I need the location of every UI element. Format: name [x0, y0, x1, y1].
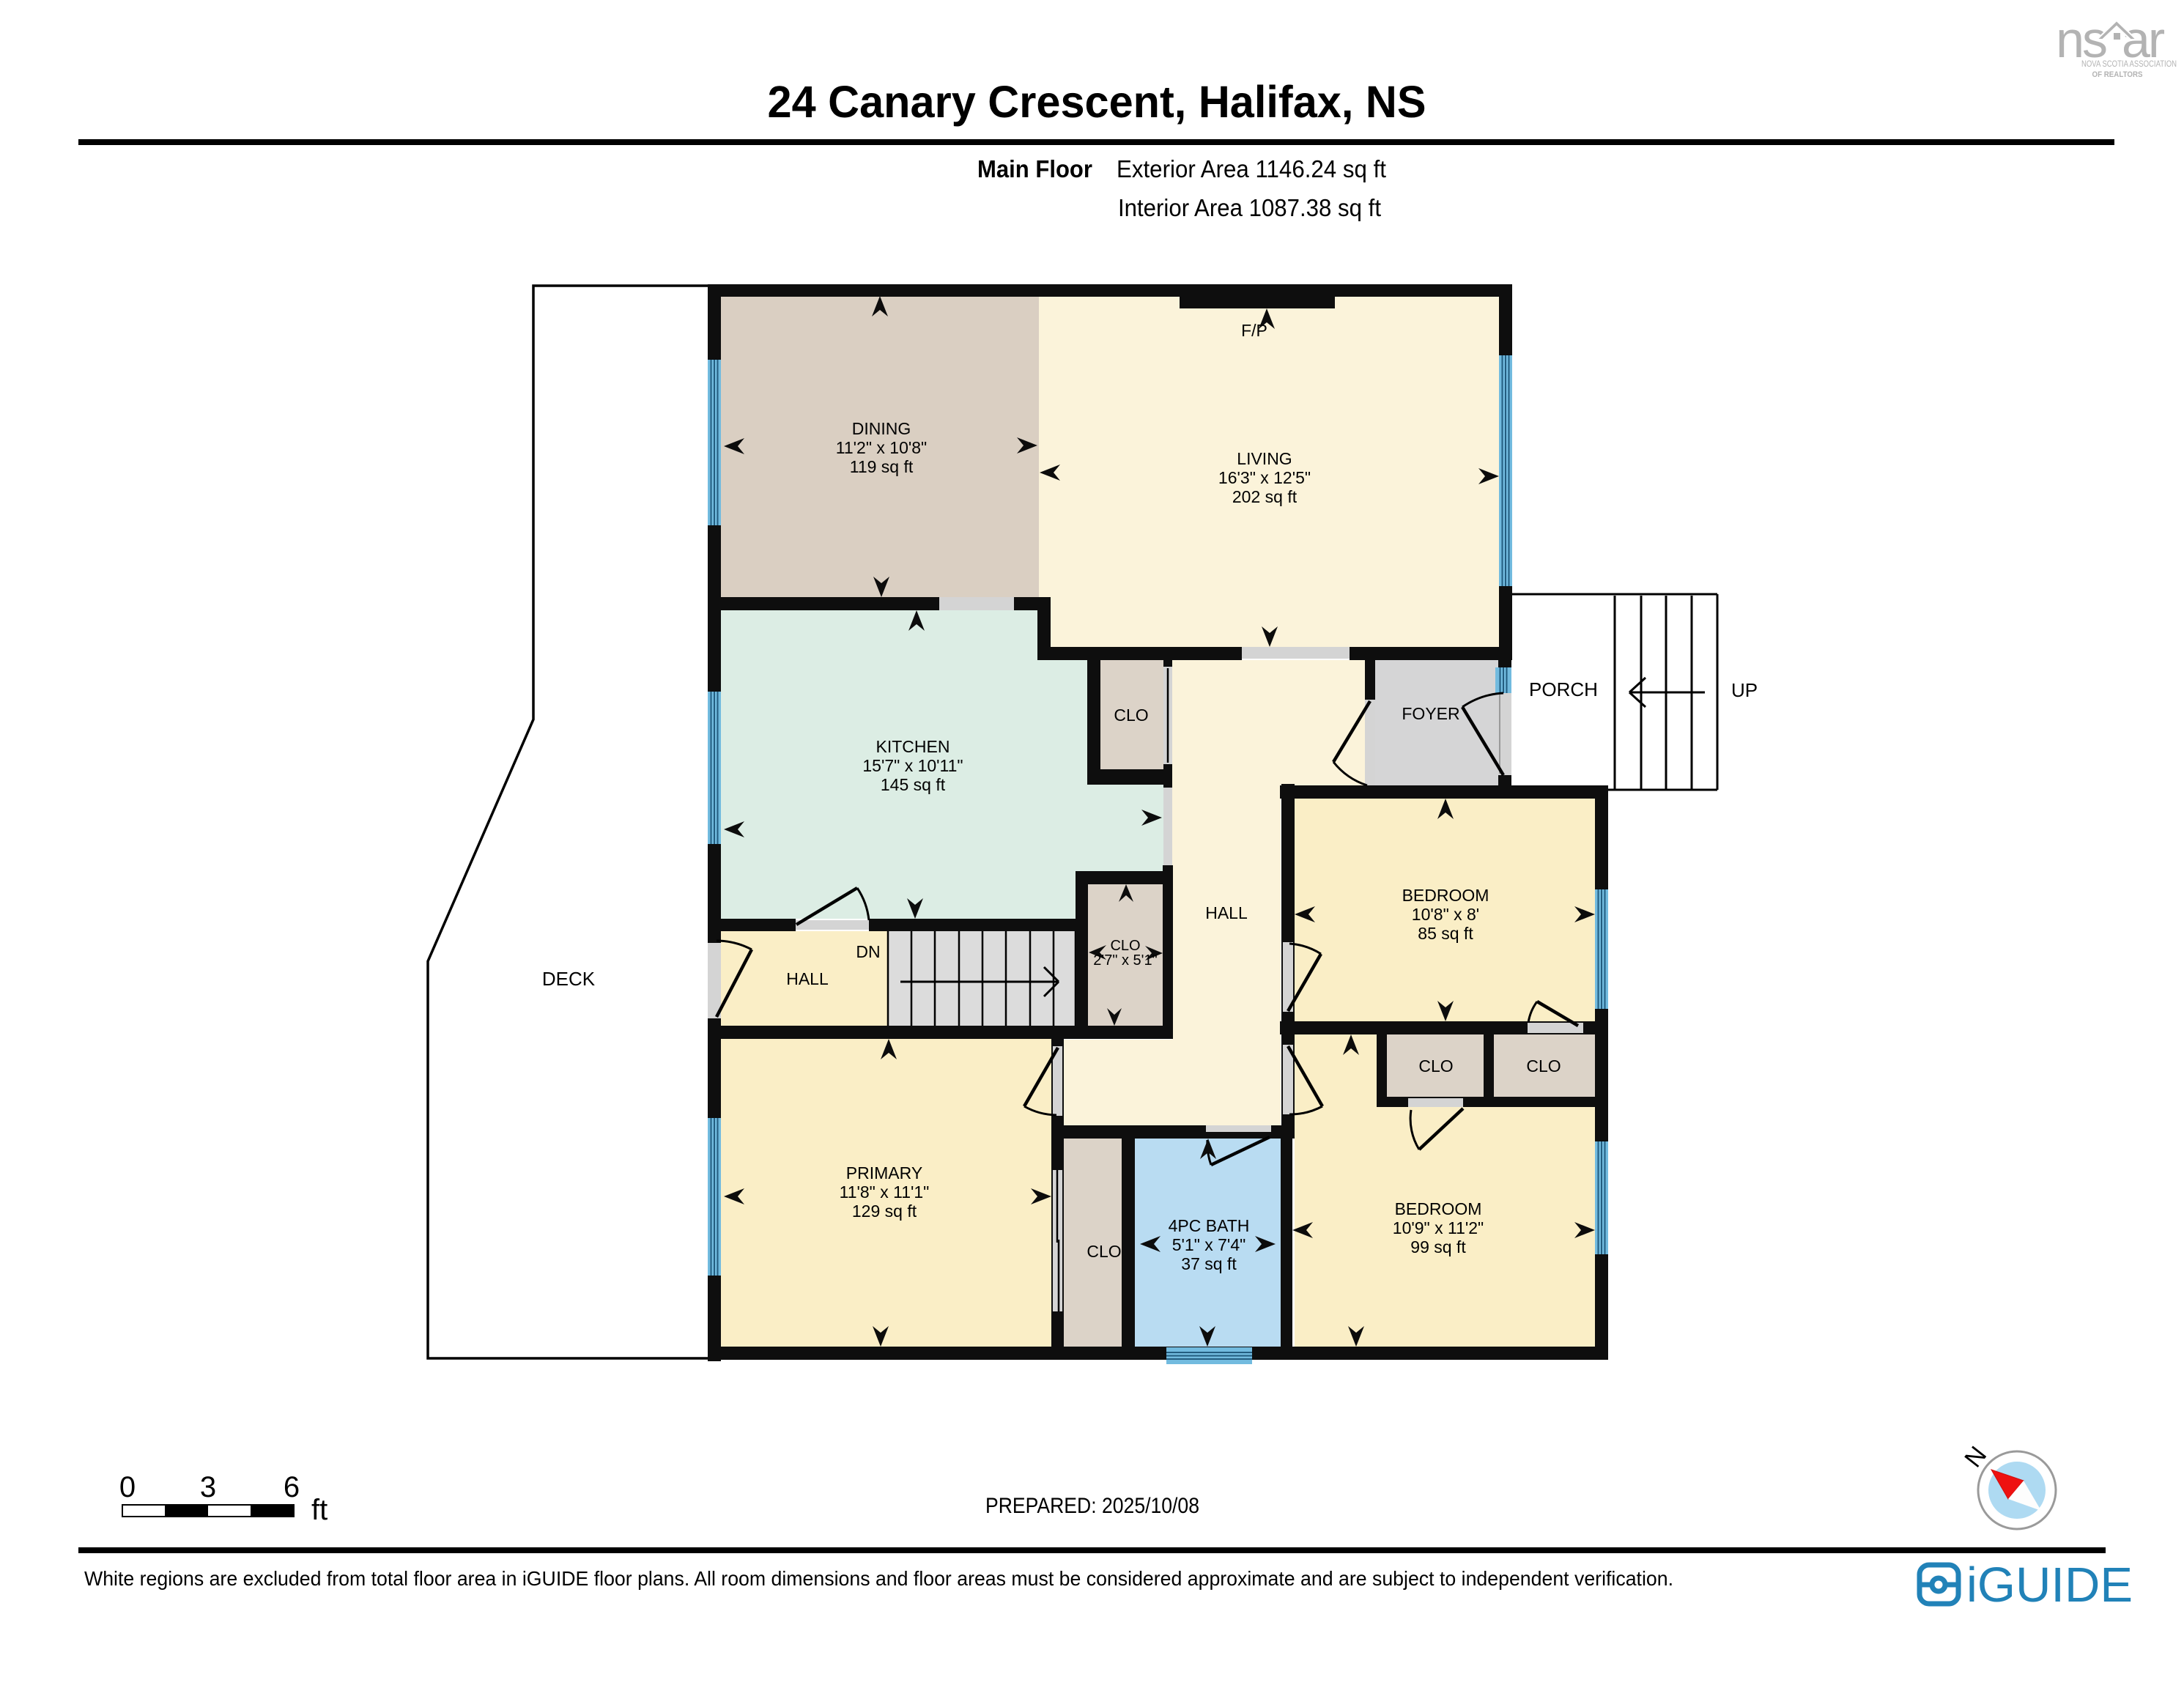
svg-text:PORCH: PORCH: [1529, 678, 1598, 700]
svg-text:OF REALTORS: OF REALTORS: [2092, 70, 2143, 79]
svg-text:24 Canary Crescent, Halifax, N: 24 Canary Crescent, Halifax, NS: [768, 77, 1426, 127]
svg-text:145 sq ft: 145 sq ft: [881, 775, 946, 794]
svg-text:F/P: F/P: [1241, 321, 1267, 340]
svg-text:2'7" x 5'1": 2'7" x 5'1": [1093, 952, 1157, 969]
svg-text:11'2" x 10'8": 11'2" x 10'8": [836, 438, 927, 457]
svg-text:ft: ft: [311, 1494, 327, 1526]
svg-text:DECK: DECK: [542, 968, 596, 990]
svg-text:CLO: CLO: [1526, 1056, 1561, 1076]
svg-text:CLO: CLO: [1087, 1242, 1121, 1261]
svg-text:6: 6: [284, 1471, 300, 1503]
svg-text:3: 3: [200, 1471, 216, 1503]
svg-text:Exterior Area 1146.24 sq ft: Exterior Area 1146.24 sq ft: [1117, 155, 1386, 182]
svg-text:85 sq ft: 85 sq ft: [1418, 924, 1473, 943]
svg-text:10'9" x 11'2": 10'9" x 11'2": [1393, 1218, 1484, 1237]
svg-text:UP: UP: [1731, 679, 1758, 701]
svg-text:NOVA SCOTIA ASSOCIATION: NOVA SCOTIA ASSOCIATION: [2081, 59, 2177, 69]
svg-text:DN: DN: [856, 942, 880, 961]
svg-text:37 sq ft: 37 sq ft: [1181, 1254, 1237, 1273]
svg-text:BEDROOM: BEDROOM: [1402, 886, 1489, 905]
svg-text:10'8" x 8': 10'8" x 8': [1412, 905, 1479, 924]
svg-text:16'3" x 12'5": 16'3" x 12'5": [1218, 468, 1311, 487]
svg-text:PREPARED: 2025/10/08: PREPARED: 2025/10/08: [985, 1494, 1199, 1518]
svg-text:FOYER: FOYER: [1402, 704, 1459, 723]
svg-text:99 sq ft: 99 sq ft: [1410, 1237, 1466, 1256]
svg-text:119 sq ft: 119 sq ft: [850, 457, 914, 476]
svg-text:4PC BATH: 4PC BATH: [1169, 1216, 1250, 1235]
svg-text:0: 0: [119, 1471, 136, 1503]
svg-text:KITCHEN: KITCHEN: [876, 737, 950, 756]
svg-text:HALL: HALL: [786, 969, 829, 988]
svg-text:DINING: DINING: [852, 419, 911, 438]
svg-text:Main Floor: Main Floor: [977, 155, 1092, 182]
svg-text:PRIMARY: PRIMARY: [846, 1163, 922, 1182]
svg-text:CLO: CLO: [1110, 938, 1140, 954]
svg-text:LIVING: LIVING: [1237, 449, 1292, 468]
svg-text:BEDROOM: BEDROOM: [1395, 1199, 1482, 1218]
svg-text:HALL: HALL: [1205, 903, 1248, 922]
svg-text:iGUIDE: iGUIDE: [1966, 1558, 2133, 1613]
svg-text:White regions are excluded fro: White regions are excluded from total fl…: [84, 1567, 1673, 1590]
svg-text:5'1" x 7'4": 5'1" x 7'4": [1172, 1235, 1246, 1254]
svg-text:CLO: CLO: [1418, 1056, 1453, 1076]
svg-text:15'7" x 10'11": 15'7" x 10'11": [862, 756, 963, 775]
svg-text:11'8" x 11'1": 11'8" x 11'1": [840, 1182, 930, 1202]
svg-text:202 sq ft: 202 sq ft: [1232, 487, 1298, 506]
svg-text:Interior Area 1087.38 sq ft: Interior Area 1087.38 sq ft: [1118, 194, 1381, 221]
svg-text:CLO: CLO: [1114, 706, 1148, 725]
svg-text:129 sq ft: 129 sq ft: [852, 1202, 917, 1221]
